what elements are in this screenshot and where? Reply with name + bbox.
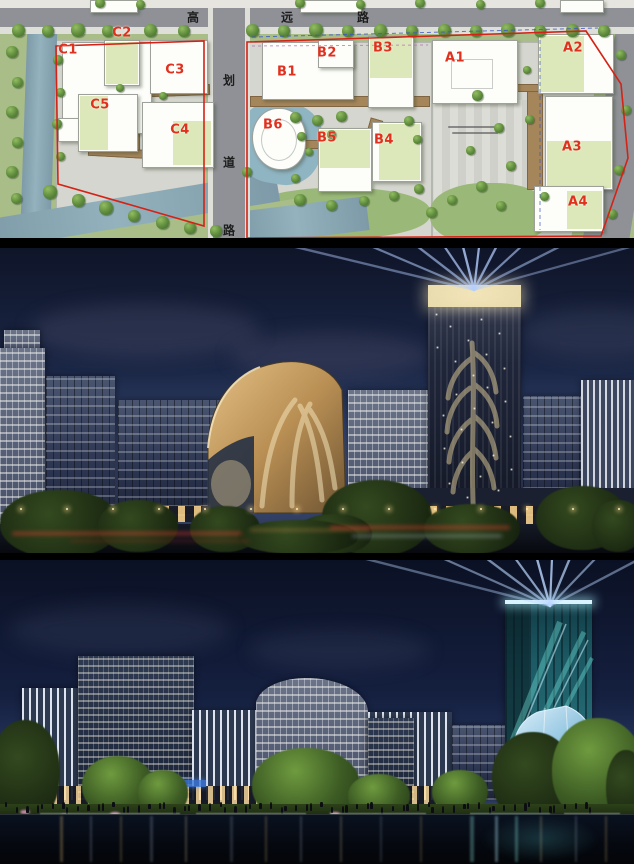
pedestrian-silhouette — [403, 805, 405, 811]
pedestrian-silhouette — [234, 806, 236, 813]
pedestrian-silhouette — [431, 807, 433, 813]
pedestrian-silhouette — [453, 805, 455, 813]
building-label-a4: A4 — [568, 195, 588, 210]
reflection-streak — [495, 816, 498, 862]
car-light-trail — [250, 529, 370, 531]
pedestrian-silhouette — [112, 802, 114, 807]
panel-divider — [0, 238, 634, 248]
street-lamp-light — [112, 508, 114, 510]
reflection-streak — [60, 816, 63, 862]
street-lamp-light — [434, 508, 436, 510]
pedestrian-silhouette — [77, 806, 79, 811]
pedestrian-silhouette — [102, 803, 104, 811]
building-label-a2: A2 — [563, 41, 583, 56]
site-boundary-lines — [0, 0, 634, 238]
street-lamp-light — [66, 508, 68, 510]
building-label-b5: B5 — [317, 131, 337, 146]
reflection-streak — [515, 816, 518, 862]
reflection-streak — [540, 816, 542, 862]
pedestrian-silhouette — [549, 806, 551, 813]
pedestrian-silhouette — [370, 802, 372, 809]
reflection-streak — [380, 816, 382, 862]
reflection-streak — [575, 816, 577, 862]
car-light-trail — [70, 540, 250, 542]
pedestrian-silhouette — [367, 803, 369, 809]
street-lamp-light — [250, 508, 252, 510]
pedestrian-silhouette — [345, 805, 347, 813]
panel-divider — [0, 553, 634, 560]
site-plan-panel: 高远路划道路 C1C2C3C5C4B1B2B3B6B5B4A1A2A3A4 — [0, 0, 634, 238]
pedestrian-silhouette — [159, 803, 161, 809]
pedestrian-silhouette — [310, 803, 312, 811]
building-label-c2: C2 — [112, 26, 132, 41]
pedestrian-silhouette — [306, 804, 308, 811]
reflection-streak — [420, 816, 422, 862]
reflection-streak — [230, 816, 233, 862]
reflection-streak — [185, 816, 187, 862]
road-name-char: 路 — [357, 9, 369, 26]
tree-silhouette — [238, 520, 358, 553]
road-name-char: 高 — [187, 9, 199, 26]
shoreline-highlight — [40, 813, 180, 814]
pedestrian-silhouette — [188, 805, 190, 811]
pedestrian-silhouette — [16, 807, 18, 813]
pedestrian-silhouette — [198, 804, 200, 811]
pedestrian-silhouette — [163, 802, 165, 809]
pedestrian-silhouette — [41, 804, 43, 809]
pedestrian-silhouette — [249, 804, 251, 809]
pedestrian-silhouette — [138, 805, 140, 813]
road-name-char: 路 — [223, 222, 235, 239]
reflection-streak — [300, 816, 302, 862]
street-lamp-light — [204, 508, 206, 510]
street-lamp-light — [296, 508, 298, 510]
road-name-char: 远 — [281, 9, 293, 26]
pedestrian-silhouette — [342, 806, 344, 813]
pedestrian-silhouette — [585, 802, 587, 809]
building-label-b4: B4 — [374, 133, 394, 148]
night-render-waterfront-panel — [0, 560, 634, 864]
shoreline-highlight — [196, 813, 306, 814]
reflection-streak — [340, 816, 342, 862]
reflection-streak — [150, 816, 153, 862]
pedestrian-silhouette — [220, 802, 222, 807]
pedestrian-silhouette — [492, 806, 494, 811]
pedestrian-silhouette — [463, 804, 465, 809]
tree-silhouette — [424, 504, 520, 553]
building-label-a3: A3 — [562, 140, 582, 155]
pedestrian-silhouette — [417, 803, 419, 811]
pedestrian-silhouette — [259, 803, 261, 809]
street-lamp-light — [526, 508, 528, 510]
building-label-b1: B1 — [277, 65, 297, 80]
building-label-c3: C3 — [165, 63, 185, 78]
pedestrian-silhouette — [62, 802, 64, 809]
tower-sparkle-lights — [0, 248, 1, 249]
street-lamp-light — [388, 508, 390, 510]
street-lamp-light — [20, 508, 22, 510]
building-label-c4: C4 — [170, 123, 190, 138]
pedestrian-silhouette — [320, 802, 322, 807]
car-light-trail — [12, 532, 242, 535]
night-render-midrise-panel — [0, 248, 634, 553]
pedestrian-silhouette — [478, 802, 480, 809]
tree-silhouette — [98, 500, 178, 552]
road-name-char: 道 — [223, 154, 235, 171]
street-lamp-light — [480, 508, 482, 510]
building-label-b3: B3 — [373, 41, 393, 56]
pedestrian-silhouette — [148, 804, 150, 809]
pedestrian-silhouette — [428, 802, 430, 807]
car-light-trail — [330, 526, 510, 529]
reflection-streak — [90, 816, 92, 862]
architecture-presentation-board: 高远路划道路 C1C2C3C5C4B1B2B3B6B5B4A1A2A3A4 — [0, 0, 634, 864]
pedestrian-silhouette — [26, 806, 28, 813]
pedestrian-silhouette — [564, 804, 566, 809]
street-lamp-light — [618, 508, 620, 510]
reflection-streak — [120, 816, 122, 862]
pedestrian-silhouette — [87, 805, 89, 811]
pedestrian-silhouette — [52, 803, 54, 809]
pedestrian-silhouette — [245, 805, 247, 813]
tree-silhouette — [592, 500, 634, 552]
shoreline-highlight — [470, 813, 550, 814]
pedestrian-silhouette — [127, 806, 129, 813]
street-lamp-light — [158, 508, 160, 510]
reflection-streak — [265, 816, 267, 862]
street-lamp-light — [572, 508, 574, 510]
pedestrian-silhouette — [514, 804, 516, 811]
building-label-c5: C5 — [90, 98, 110, 113]
shoreline-highlight — [330, 813, 426, 814]
pedestrian-silhouette — [575, 803, 577, 809]
pedestrian-silhouette — [503, 805, 505, 811]
shoreline-highlight — [564, 813, 620, 814]
reflection-streak — [605, 816, 607, 862]
building-label-b2: B2 — [317, 46, 337, 61]
building-label-a1: A1 — [445, 51, 465, 66]
road-name-char: 划 — [223, 72, 235, 89]
pedestrian-silhouette — [284, 806, 286, 811]
pedestrian-silhouette — [406, 804, 408, 811]
car-light-trail — [352, 535, 502, 537]
building-label-b6: B6 — [263, 118, 283, 133]
pedestrian-silhouette — [524, 803, 526, 811]
pedestrian-silhouette — [392, 806, 394, 811]
street-lamp-light — [342, 508, 344, 510]
reflection-streak — [470, 816, 474, 862]
building-label-c1: C1 — [58, 43, 78, 58]
